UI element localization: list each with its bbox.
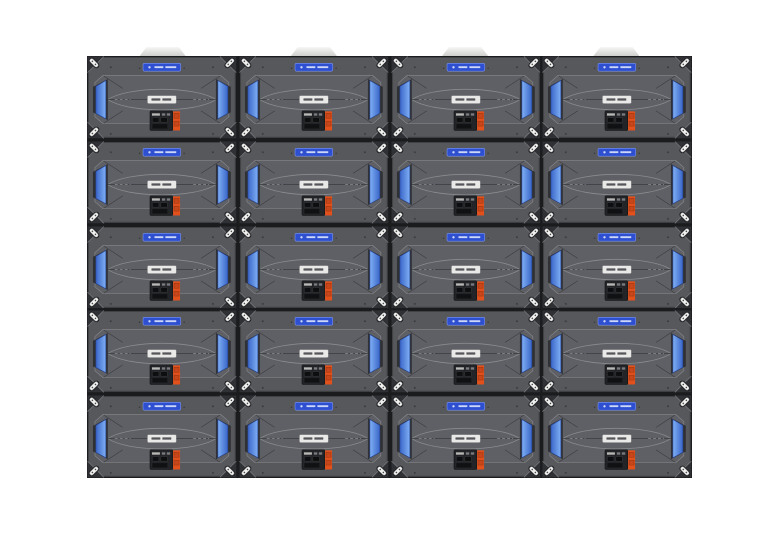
screw xyxy=(212,321,214,323)
screw xyxy=(335,237,337,239)
badge-text-mark xyxy=(610,151,619,153)
power-port xyxy=(465,368,468,370)
model-label-text-mark xyxy=(151,268,160,270)
badge-text-mark xyxy=(154,321,163,323)
screw xyxy=(515,405,517,407)
power-connector xyxy=(152,457,158,461)
badge-text-mark xyxy=(621,321,632,323)
screw xyxy=(364,66,366,68)
screw xyxy=(413,472,415,474)
led-cabinet-panel xyxy=(239,141,389,224)
model-label-text-mark xyxy=(466,183,475,185)
screw xyxy=(212,133,214,135)
blue-handle-left xyxy=(248,250,258,288)
hanging-bracket xyxy=(140,47,186,56)
badge-text-mark xyxy=(469,151,480,153)
blue-handle-left xyxy=(551,420,561,458)
badge-text-mark xyxy=(165,321,176,323)
power-brand-mark xyxy=(152,113,160,115)
led-cabinet-panel xyxy=(391,141,541,224)
warning-sticker xyxy=(174,453,179,458)
screw xyxy=(335,67,337,69)
power-module xyxy=(453,196,483,216)
screw xyxy=(262,236,264,238)
screw xyxy=(364,405,366,407)
power-brand-mark xyxy=(304,113,312,115)
warning-sticker xyxy=(326,368,331,373)
screw xyxy=(335,152,337,154)
warning-sticker xyxy=(478,460,483,465)
model-label-text-mark xyxy=(455,438,464,440)
model-label xyxy=(451,265,480,273)
screw xyxy=(667,405,669,407)
power-port xyxy=(167,113,170,115)
model-label xyxy=(299,96,328,104)
screw xyxy=(262,218,264,220)
screw xyxy=(262,66,264,68)
model-label-text-mark xyxy=(466,438,475,440)
warning-sticker xyxy=(629,453,634,458)
power-port xyxy=(319,283,322,285)
power-slot xyxy=(304,378,319,382)
screw xyxy=(110,321,112,323)
status-badge xyxy=(143,403,181,411)
power-brand-mark xyxy=(152,453,160,455)
power-connector xyxy=(616,118,622,122)
power-port xyxy=(470,453,473,455)
model-label xyxy=(603,96,632,104)
screw xyxy=(291,152,293,154)
status-badge xyxy=(143,148,181,156)
blue-handle-left xyxy=(96,335,106,373)
power-brand-mark xyxy=(607,453,615,455)
blue-handle-right xyxy=(521,250,531,288)
warning-sticker xyxy=(326,460,331,465)
badge-logo-icon xyxy=(148,236,150,238)
badge-logo-icon xyxy=(604,405,606,407)
power-module xyxy=(302,450,332,470)
power-connector xyxy=(152,372,158,376)
power-module xyxy=(150,280,180,300)
model-label-text-mark xyxy=(314,353,323,355)
screw xyxy=(667,387,669,389)
power-brand-mark xyxy=(607,368,615,370)
blue-handle-right xyxy=(370,165,380,203)
screw xyxy=(139,237,141,239)
hanging-bracket xyxy=(291,47,337,56)
warning-sticker xyxy=(326,121,331,126)
screw xyxy=(565,405,567,407)
model-label-text-mark xyxy=(455,183,464,185)
screw xyxy=(212,303,214,305)
screw xyxy=(262,133,264,135)
led-cabinet-panel xyxy=(87,56,237,139)
led-cabinet-panel xyxy=(87,310,237,393)
warning-sticker xyxy=(174,113,179,118)
warning-sticker xyxy=(174,121,179,126)
badge-logo-icon xyxy=(300,151,302,153)
badge-text-mark xyxy=(458,66,467,68)
power-module xyxy=(302,280,332,300)
screw xyxy=(262,303,264,305)
power-port xyxy=(617,368,620,370)
power-slot xyxy=(456,378,471,382)
led-cabinet-panel xyxy=(239,395,389,478)
warning-sticker xyxy=(629,121,634,126)
screw xyxy=(515,133,517,135)
model-label-text-mark xyxy=(303,268,312,270)
screw xyxy=(413,218,415,220)
model-label-text-mark xyxy=(455,353,464,355)
screw xyxy=(565,472,567,474)
warning-sticker xyxy=(629,376,634,381)
warning-sticker xyxy=(326,283,331,288)
hanging-bracket-slot xyxy=(87,47,238,56)
badge-text-mark xyxy=(621,236,632,238)
status-badge xyxy=(447,233,485,241)
warning-sticker xyxy=(478,368,483,373)
screw xyxy=(594,67,596,69)
power-slot xyxy=(152,294,167,298)
status-badge xyxy=(143,233,181,241)
power-slot xyxy=(608,124,623,128)
power-connector xyxy=(608,118,614,122)
power-connector xyxy=(456,372,462,376)
blue-handle-right xyxy=(218,335,228,373)
screw xyxy=(442,67,444,69)
hanging-bracket-slot xyxy=(541,47,692,56)
screw xyxy=(639,67,641,69)
screw xyxy=(212,387,214,389)
power-module xyxy=(150,365,180,385)
power-port xyxy=(314,453,317,455)
led-cabinet-panel xyxy=(391,395,541,478)
screw xyxy=(110,405,112,407)
badge-logo-icon xyxy=(452,405,454,407)
power-port xyxy=(622,283,625,285)
blue-handle-right xyxy=(218,80,228,118)
status-badge xyxy=(143,63,181,71)
model-label-text-mark xyxy=(162,438,171,440)
blue-handle-left xyxy=(248,420,258,458)
screw xyxy=(364,133,366,135)
badge-logo-icon xyxy=(148,66,150,68)
screw xyxy=(667,472,669,474)
screw xyxy=(364,321,366,323)
warning-sticker xyxy=(326,376,331,381)
power-module xyxy=(605,365,635,385)
badge-text-mark xyxy=(621,151,632,153)
badge-logo-icon xyxy=(452,66,454,68)
screw xyxy=(413,236,415,238)
screw xyxy=(183,322,185,324)
blue-handle-left xyxy=(551,335,561,373)
warning-sticker xyxy=(174,368,179,373)
power-connector xyxy=(313,287,319,291)
badge-logo-icon xyxy=(300,236,302,238)
screw xyxy=(183,152,185,154)
hanging-bracket-slot xyxy=(238,47,389,56)
badge-text-mark xyxy=(317,151,328,153)
screw xyxy=(487,237,489,239)
blue-handle-right xyxy=(521,420,531,458)
power-port xyxy=(167,283,170,285)
power-port xyxy=(465,283,468,285)
model-label xyxy=(603,350,632,358)
power-connector xyxy=(313,203,319,207)
warning-sticker xyxy=(174,291,179,296)
power-connector xyxy=(313,457,319,461)
status-badge xyxy=(447,318,485,326)
screw xyxy=(212,472,214,474)
badge-text-mark xyxy=(154,236,163,238)
screw xyxy=(291,322,293,324)
warning-sticker xyxy=(478,376,483,381)
status-badge xyxy=(295,403,333,411)
model-label-text-mark xyxy=(151,183,160,185)
screw xyxy=(110,218,112,220)
warning-sticker xyxy=(478,121,483,126)
status-badge xyxy=(447,63,485,71)
blue-handle-right xyxy=(218,165,228,203)
screw xyxy=(364,151,366,153)
led-cabinet-panel xyxy=(239,226,389,309)
power-port xyxy=(162,283,165,285)
screw xyxy=(291,67,293,69)
blue-handle-right xyxy=(673,80,683,118)
screw xyxy=(639,407,641,409)
led-video-wall xyxy=(87,56,692,478)
warning-sticker xyxy=(478,198,483,203)
power-slot xyxy=(456,209,471,213)
model-label xyxy=(299,180,328,188)
power-port xyxy=(314,368,317,370)
screw xyxy=(594,152,596,154)
status-badge xyxy=(295,318,333,326)
screw xyxy=(515,472,517,474)
blue-handle-left xyxy=(551,165,561,203)
screw xyxy=(110,133,112,135)
screw xyxy=(212,218,214,220)
warning-sticker xyxy=(629,198,634,203)
status-badge xyxy=(598,403,636,411)
led-cabinet-panel xyxy=(87,395,237,478)
warning-sticker xyxy=(478,113,483,118)
power-slot xyxy=(456,124,471,128)
badge-text-mark xyxy=(469,66,480,68)
badge-logo-icon xyxy=(604,320,606,322)
blue-handle-right xyxy=(673,335,683,373)
badge-logo-icon xyxy=(604,66,606,68)
model-label-text-mark xyxy=(303,98,312,100)
model-label-text-mark xyxy=(466,353,475,355)
hanging-bracket-slot xyxy=(390,47,541,56)
screw xyxy=(183,407,185,409)
screw xyxy=(515,218,517,220)
model-label-text-mark xyxy=(151,438,160,440)
model-label-text-mark xyxy=(162,268,171,270)
power-port xyxy=(470,198,473,200)
warning-sticker xyxy=(478,453,483,458)
warning-sticker xyxy=(629,291,634,296)
screw xyxy=(364,472,366,474)
model-label xyxy=(451,435,480,443)
power-connector xyxy=(161,287,167,291)
power-brand-mark xyxy=(304,453,312,455)
badge-text-mark xyxy=(165,66,176,68)
power-port xyxy=(622,453,625,455)
screw xyxy=(364,236,366,238)
screw xyxy=(110,151,112,153)
blue-handle-right xyxy=(218,420,228,458)
power-port xyxy=(167,453,170,455)
badge-text-mark xyxy=(306,151,315,153)
model-label-text-mark xyxy=(455,268,464,270)
screw xyxy=(110,387,112,389)
status-badge xyxy=(295,63,333,71)
power-brand-mark xyxy=(607,113,615,115)
warning-sticker xyxy=(629,283,634,288)
power-brand-mark xyxy=(455,198,463,200)
cabinet-grid xyxy=(87,56,692,478)
model-label-text-mark xyxy=(162,98,171,100)
power-brand-mark xyxy=(607,198,615,200)
screw xyxy=(515,236,517,238)
screw xyxy=(667,218,669,220)
power-port xyxy=(314,113,317,115)
screw xyxy=(442,152,444,154)
warning-sticker xyxy=(629,368,634,373)
warning-sticker xyxy=(478,283,483,288)
screw xyxy=(667,66,669,68)
screw xyxy=(487,322,489,324)
badge-text-mark xyxy=(610,66,619,68)
power-connector xyxy=(456,203,462,207)
model-label-text-mark xyxy=(466,268,475,270)
power-connector xyxy=(608,457,614,461)
power-connector xyxy=(456,287,462,291)
screw xyxy=(413,321,415,323)
power-connector xyxy=(616,372,622,376)
power-slot xyxy=(152,463,167,467)
power-connector xyxy=(456,118,462,122)
power-connector xyxy=(616,457,622,461)
power-brand-mark xyxy=(455,283,463,285)
screw xyxy=(139,67,141,69)
model-label-text-mark xyxy=(162,353,171,355)
screw xyxy=(565,387,567,389)
warning-sticker xyxy=(478,291,483,296)
hanging-brackets-row xyxy=(87,47,692,56)
screw xyxy=(335,407,337,409)
blue-handle-left xyxy=(399,165,409,203)
led-cabinet-panel xyxy=(391,56,541,139)
model-label-text-mark xyxy=(607,268,616,270)
blue-handle-left xyxy=(551,80,561,118)
status-badge xyxy=(143,318,181,326)
blue-handle-left xyxy=(96,165,106,203)
model-label xyxy=(451,180,480,188)
warning-sticker xyxy=(326,198,331,203)
led-cabinet-panel xyxy=(542,310,692,393)
power-connector xyxy=(152,118,158,122)
screw xyxy=(639,237,641,239)
screw xyxy=(413,133,415,135)
status-badge xyxy=(598,233,636,241)
blue-handle-left xyxy=(96,420,106,458)
power-module xyxy=(150,111,180,131)
screw xyxy=(639,152,641,154)
badge-logo-icon xyxy=(300,320,302,322)
warning-sticker xyxy=(326,206,331,211)
power-connector xyxy=(616,203,622,207)
led-cabinet-panel xyxy=(87,141,237,224)
screw xyxy=(335,322,337,324)
power-port xyxy=(319,113,322,115)
screw xyxy=(291,237,293,239)
power-brand-mark xyxy=(455,368,463,370)
power-connector xyxy=(152,287,158,291)
badge-text-mark xyxy=(458,151,467,153)
badge-logo-icon xyxy=(148,405,150,407)
badge-text-mark xyxy=(469,236,480,238)
power-brand-mark xyxy=(304,368,312,370)
hanging-bracket xyxy=(442,47,488,56)
badge-logo-icon xyxy=(300,405,302,407)
screw xyxy=(515,66,517,68)
screw xyxy=(515,321,517,323)
screw xyxy=(442,237,444,239)
power-port xyxy=(465,198,468,200)
power-slot xyxy=(152,124,167,128)
warning-sticker xyxy=(629,113,634,118)
model-label-text-mark xyxy=(466,98,475,100)
power-connector xyxy=(608,203,614,207)
badge-logo-icon xyxy=(452,236,454,238)
badge-text-mark xyxy=(306,236,315,238)
model-label-text-mark xyxy=(314,268,323,270)
power-port xyxy=(319,368,322,370)
power-connector xyxy=(608,287,614,291)
led-cabinet-panel xyxy=(542,141,692,224)
screw xyxy=(487,407,489,409)
status-badge xyxy=(598,148,636,156)
badge-text-mark xyxy=(306,405,315,407)
screw xyxy=(487,67,489,69)
badge-text-mark xyxy=(621,66,632,68)
blue-handle-left xyxy=(399,80,409,118)
warning-sticker xyxy=(174,198,179,203)
screw xyxy=(110,472,112,474)
badge-text-mark xyxy=(165,405,176,407)
power-module xyxy=(605,280,635,300)
screw xyxy=(565,218,567,220)
power-port xyxy=(162,368,165,370)
led-cabinet-panel xyxy=(391,226,541,309)
badge-text-mark xyxy=(469,405,480,407)
badge-text-mark xyxy=(154,151,163,153)
model-label-text-mark xyxy=(607,438,616,440)
screw xyxy=(212,66,214,68)
blue-handle-right xyxy=(673,165,683,203)
screw xyxy=(413,66,415,68)
power-port xyxy=(622,113,625,115)
power-port xyxy=(162,198,165,200)
power-brand-mark xyxy=(152,198,160,200)
power-port xyxy=(470,283,473,285)
blue-handle-left xyxy=(399,250,409,288)
power-brand-mark xyxy=(152,283,160,285)
